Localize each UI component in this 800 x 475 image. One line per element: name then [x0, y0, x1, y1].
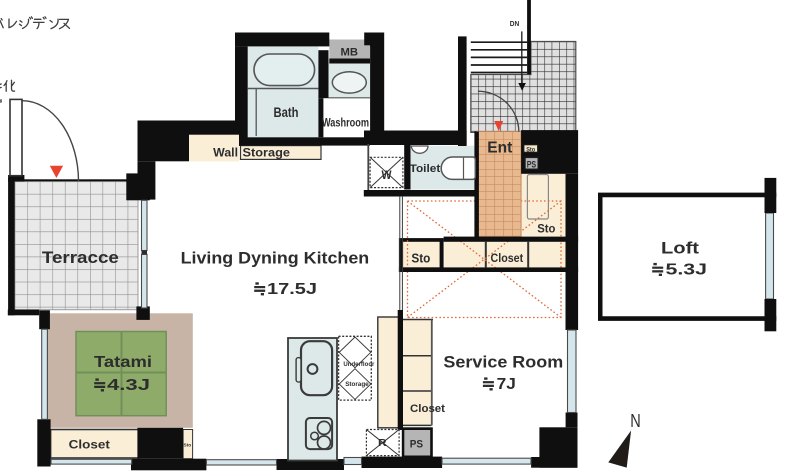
svg-text:Service Room: Service Room	[443, 354, 563, 372]
svg-text:Storage: Storage	[345, 381, 369, 388]
svg-text:R: R	[378, 438, 387, 449]
svg-text:17.5J: 17.5J	[267, 281, 317, 298]
svg-text:PS: PS	[527, 159, 537, 170]
svg-text:7J: 7J	[497, 376, 516, 393]
svg-text:Closet: Closet	[410, 403, 445, 415]
svg-text:Living Dyning Kitchen: Living Dyning Kitchen	[181, 249, 370, 267]
svg-text:W: W	[382, 168, 393, 182]
svg-text:MB: MB	[341, 46, 359, 58]
svg-text:N: N	[630, 410, 641, 431]
svg-text:Bath: Bath	[274, 105, 299, 120]
svg-text:DN: DN	[510, 19, 520, 28]
svg-text:Washroom: Washroom	[322, 116, 369, 130]
svg-text:Wall: Wall	[213, 146, 238, 160]
svg-text:Sto: Sto	[526, 148, 535, 154]
svg-text:Sto: Sto	[184, 443, 192, 449]
svg-text:Closet: Closet	[491, 251, 524, 265]
svg-text:Sto: Sto	[411, 252, 430, 266]
svg-text:Underfloor: Underfloor	[343, 361, 374, 368]
svg-text:Tatami: Tatami	[94, 354, 152, 371]
svg-text:Terracce: Terracce	[42, 249, 119, 267]
svg-text:Loft: Loft	[661, 240, 700, 258]
svg-text:Sto: Sto	[537, 222, 555, 236]
svg-text:5.3J: 5.3J	[666, 262, 708, 279]
svg-text:Closet: Closet	[69, 440, 110, 452]
svg-text:Storage: Storage	[243, 146, 291, 160]
svg-text:4.3J: 4.3J	[107, 377, 150, 394]
svg-text:Ent: Ent	[487, 140, 512, 157]
svg-text:Toilet: Toilet	[410, 163, 441, 175]
svg-text:PS: PS	[410, 439, 424, 451]
